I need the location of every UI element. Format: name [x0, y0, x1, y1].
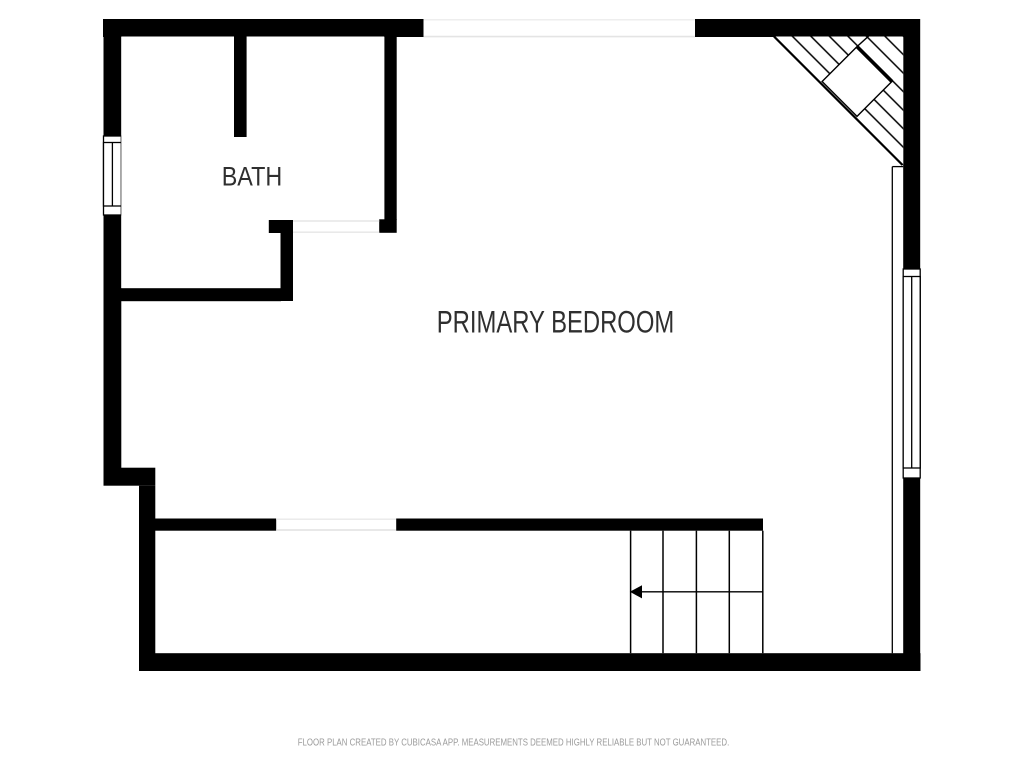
- svg-text:BATH: BATH: [222, 161, 283, 192]
- svg-text:PRIMARY BEDROOM: PRIMARY BEDROOM: [437, 304, 675, 340]
- svg-text:FLOOR PLAN CREATED BY CUBICASA: FLOOR PLAN CREATED BY CUBICASA APP. MEAS…: [298, 737, 730, 748]
